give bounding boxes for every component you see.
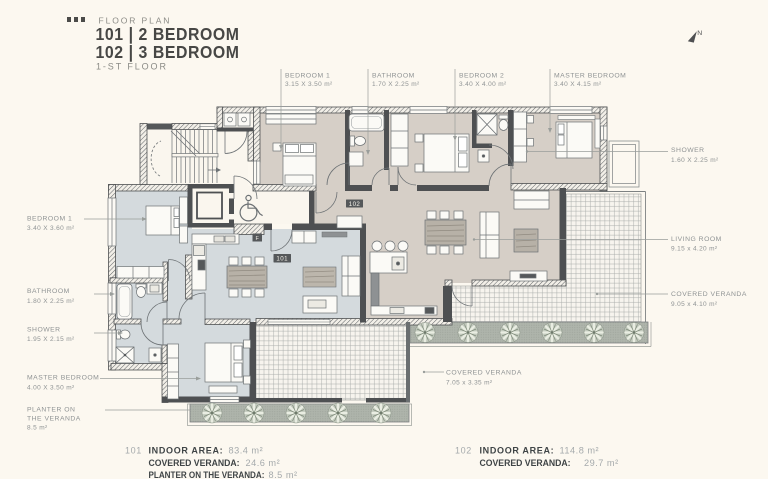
svg-text:MASTER BEDROOM: MASTER BEDROOM [554, 73, 626, 80]
svg-text:LIVING ROOM: LIVING ROOM [671, 236, 722, 243]
svg-text:COVERED VERANDA: COVERED VERANDA [671, 291, 747, 298]
svg-text:102 | 3 BEDROOM: 102 | 3 BEDROOM [96, 42, 240, 62]
svg-text:114.8 m²: 114.8 m² [560, 446, 600, 456]
svg-text:8.5 m²: 8.5 m² [269, 470, 298, 479]
svg-text:101: 101 [125, 446, 142, 456]
svg-text:9.05 x 4.10 m²: 9.05 x 4.10 m² [671, 301, 718, 308]
svg-text:8.5 m²: 8.5 m² [27, 425, 48, 432]
svg-text:3.15 X 3.50 m²: 3.15 X 3.50 m² [285, 81, 333, 88]
svg-text:3.40 X 3.60 m²: 3.40 X 3.60 m² [27, 225, 75, 232]
svg-text:INDOOR AREA:: INDOOR AREA: [480, 446, 555, 456]
svg-text:7.05 x 3.35 m²: 7.05 x 3.35 m² [446, 380, 493, 387]
svg-text:BEDROOM 1: BEDROOM 1 [27, 216, 72, 223]
svg-text:102: 102 [455, 446, 472, 456]
svg-text:PLANTER ON: PLANTER ON [27, 407, 75, 414]
svg-text:1.70 X 2.25 m²: 1.70 X 2.25 m² [372, 81, 420, 88]
svg-text:1.60 X 2.25 m²: 1.60 X 2.25 m² [671, 157, 719, 164]
svg-text:N: N [697, 30, 702, 37]
svg-text:SHOWER: SHOWER [671, 147, 705, 154]
svg-text:SHOWER: SHOWER [27, 327, 61, 334]
svg-text:29.7 m²: 29.7 m² [584, 458, 619, 468]
svg-text:1.95 X 2.15 m²: 1.95 X 2.15 m² [27, 336, 75, 343]
svg-text:THE VERANDA: THE VERANDA [27, 416, 81, 423]
svg-text:PLANTER ON THE VERANDA:: PLANTER ON THE VERANDA: [149, 470, 265, 479]
svg-text:83.4 m²: 83.4 m² [229, 446, 264, 456]
svg-text:3.40 X 4.00 m²: 3.40 X 4.00 m² [459, 81, 507, 88]
svg-text:102: 102 [349, 201, 361, 208]
svg-text:1-ST FLOOR: 1-ST FLOOR [96, 62, 168, 72]
svg-text:BEDROOM 2: BEDROOM 2 [459, 73, 504, 80]
svg-text:BATHROOM: BATHROOM [372, 73, 415, 80]
svg-text:INDOOR AREA:: INDOOR AREA: [149, 446, 224, 456]
svg-text:101: 101 [276, 256, 288, 263]
svg-text:9.15 x 4.20 m²: 9.15 x 4.20 m² [671, 246, 718, 253]
svg-text:24.6 m²: 24.6 m² [246, 458, 281, 468]
svg-text:3.40 X 4.15 m²: 3.40 X 4.15 m² [554, 81, 602, 88]
svg-text:COVERED VERANDA: COVERED VERANDA [446, 370, 522, 377]
svg-text:COVERED VERANDA:: COVERED VERANDA: [149, 458, 240, 468]
svg-text:BATHROOM: BATHROOM [27, 288, 70, 295]
svg-text:1.80 X 2.25 m²: 1.80 X 2.25 m² [27, 298, 75, 305]
svg-text:COVERED VERANDA:: COVERED VERANDA: [480, 458, 571, 468]
svg-text:MASTER BEDROOM: MASTER BEDROOM [27, 375, 99, 382]
svg-text:BEDROOM 1: BEDROOM 1 [285, 73, 330, 80]
svg-text:4.00 X 3.50 m²: 4.00 X 3.50 m² [27, 385, 75, 392]
